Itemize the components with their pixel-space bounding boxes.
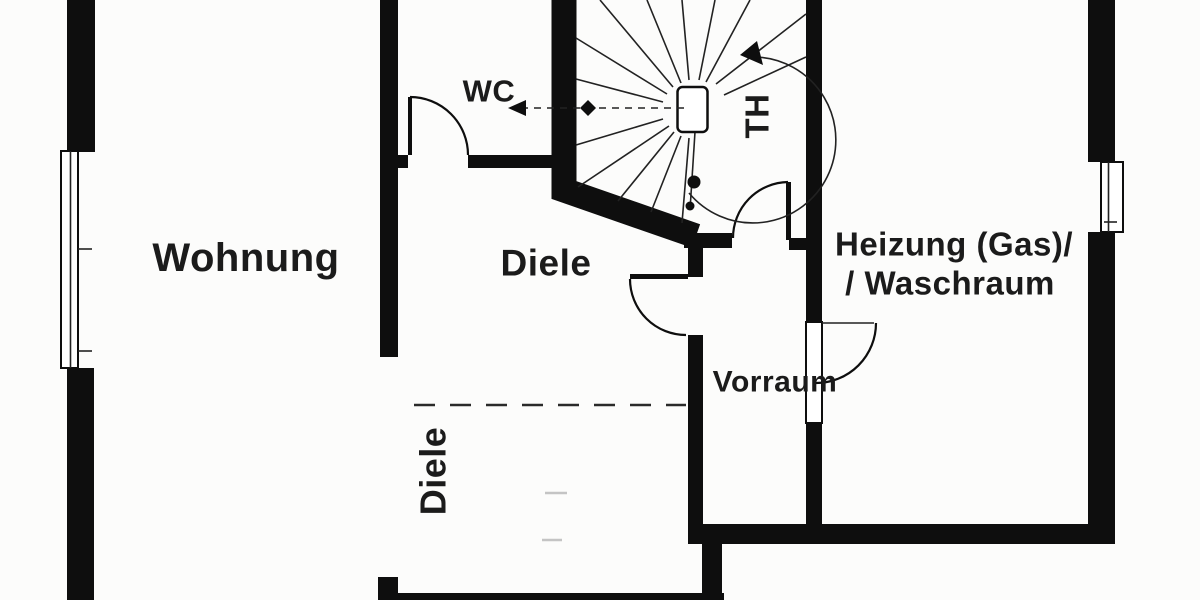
door-wc bbox=[408, 97, 468, 155]
wall-wc-left-stub bbox=[398, 155, 408, 168]
floor-plan-page: Wohnung WC Diele TH Vorraum Heizung (Gas… bbox=[0, 0, 1200, 600]
walkline-dot bbox=[688, 176, 701, 189]
wall-bottom bbox=[390, 593, 724, 600]
label-vorraum: Vorraum bbox=[713, 366, 838, 399]
wall-wc-right bbox=[468, 155, 553, 168]
window-left bbox=[61, 151, 92, 368]
wall-right-exterior-bottom bbox=[1088, 232, 1115, 544]
wall-right-exterior-top bbox=[1088, 0, 1115, 162]
floor-plan-drawing: Wohnung WC Diele TH Vorraum Heizung (Gas… bbox=[0, 0, 1200, 600]
walkline-dot bbox=[686, 202, 695, 211]
label-wohnung: Wohnung bbox=[152, 236, 339, 280]
label-th: TH bbox=[739, 94, 776, 139]
wall-diele-vorraum-lower bbox=[688, 335, 703, 528]
wall-vorraum-door-step bbox=[789, 238, 806, 250]
window-right bbox=[1101, 162, 1123, 232]
wall-wohnung-diele bbox=[380, 0, 398, 357]
label-diele-lower: Diele bbox=[413, 427, 454, 516]
label-diele-upper: Diele bbox=[501, 243, 592, 284]
label-heizung-line1: Heizung (Gas)/ bbox=[835, 226, 1073, 263]
wall-left-exterior-bottom bbox=[67, 368, 94, 600]
wall-vorraum-heizung-bottom bbox=[688, 524, 1115, 544]
annotation-lines bbox=[414, 405, 686, 540]
wall-diele-vorraum-upper bbox=[688, 240, 703, 277]
door-diele-vorraum bbox=[630, 274, 688, 335]
label-wc: WC bbox=[463, 74, 516, 109]
stair-direction-arrow-icon bbox=[740, 41, 763, 65]
room-labels: Wohnung WC Diele TH Vorraum Heizung (Gas… bbox=[152, 74, 1073, 516]
label-heizung-line2: / Waschraum bbox=[845, 265, 1055, 302]
stair-exit-arrow bbox=[508, 100, 684, 116]
door-th-vorraum bbox=[733, 182, 791, 240]
wall-th-heizung-top bbox=[806, 0, 822, 322]
wall-left-exterior-top bbox=[67, 0, 95, 152]
stair-newel-post bbox=[678, 87, 708, 132]
wall-jog-bottom bbox=[702, 524, 722, 600]
wall-th-heizung-bottom bbox=[806, 422, 822, 524]
walkline-diamond-icon bbox=[580, 100, 596, 116]
